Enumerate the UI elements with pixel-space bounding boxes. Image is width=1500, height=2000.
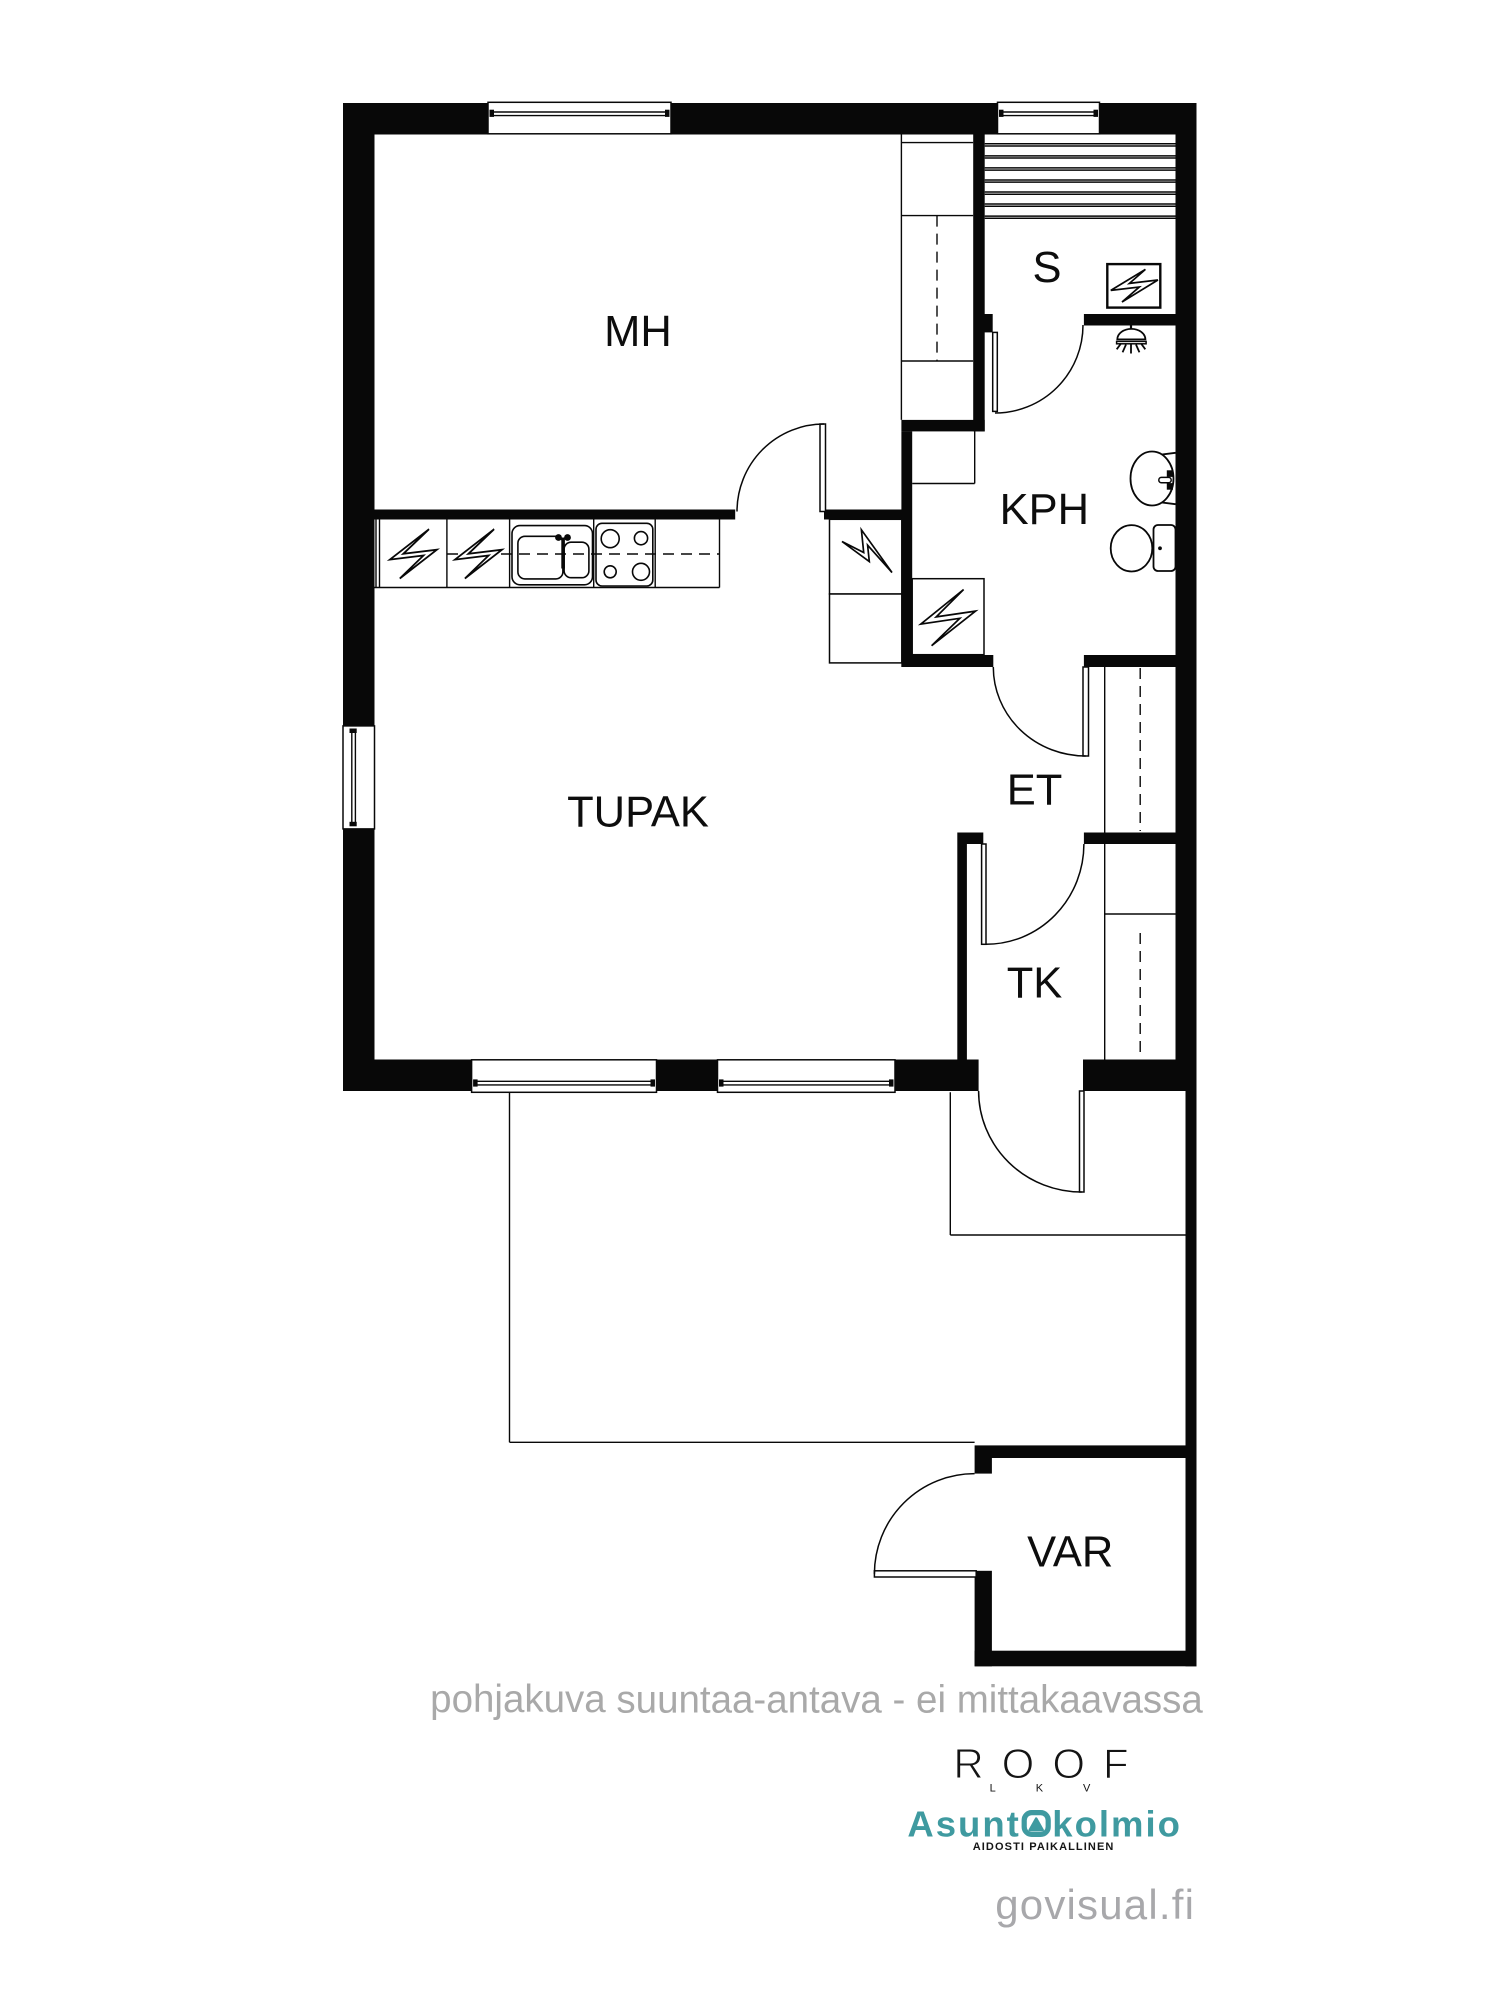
svg-text:S: S xyxy=(1032,244,1061,292)
svg-text:MH: MH xyxy=(604,308,672,356)
svg-text:LKV: LKV xyxy=(990,1782,1131,1794)
svg-text:TK: TK xyxy=(1007,959,1063,1007)
svg-text:Asunt: Asunt xyxy=(907,1804,1020,1845)
svg-text:KPH: KPH xyxy=(1000,486,1089,534)
svg-text:AIDOSTI PAIKALLINEN: AIDOSTI PAIKALLINEN xyxy=(973,1841,1115,1853)
svg-text:TUPAK: TUPAK xyxy=(567,788,709,836)
svg-text:ET: ET xyxy=(1007,766,1063,814)
svg-text:kolmio: kolmio xyxy=(1052,1804,1182,1845)
svg-text:govisual.fi: govisual.fi xyxy=(995,1881,1195,1928)
svg-text:ROOF: ROOF xyxy=(953,1740,1146,1787)
svg-text:pohjakuva suuntaa-antava - ei: pohjakuva suuntaa-antava - ei mittakaava… xyxy=(430,1678,1203,1721)
svg-text:VAR: VAR xyxy=(1027,1529,1113,1577)
